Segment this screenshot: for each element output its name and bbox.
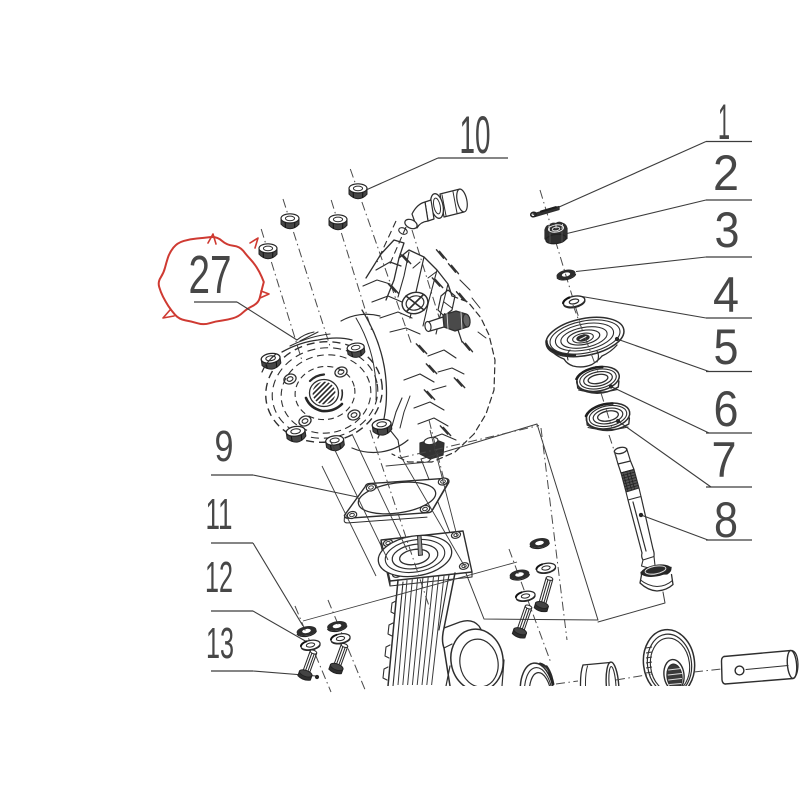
svg-text:13: 13 [206, 619, 234, 668]
svg-text:11: 11 [206, 490, 233, 539]
svg-text:3: 3 [715, 202, 740, 258]
svg-text:5: 5 [714, 319, 739, 375]
svg-text:2: 2 [713, 145, 739, 201]
svg-text:27: 27 [189, 245, 232, 305]
svg-text:7: 7 [712, 432, 737, 488]
svg-text:6: 6 [714, 381, 739, 437]
svg-text:9: 9 [215, 422, 234, 471]
svg-text:12: 12 [205, 553, 233, 602]
svg-text:10: 10 [460, 106, 491, 165]
svg-text:4: 4 [713, 267, 739, 323]
